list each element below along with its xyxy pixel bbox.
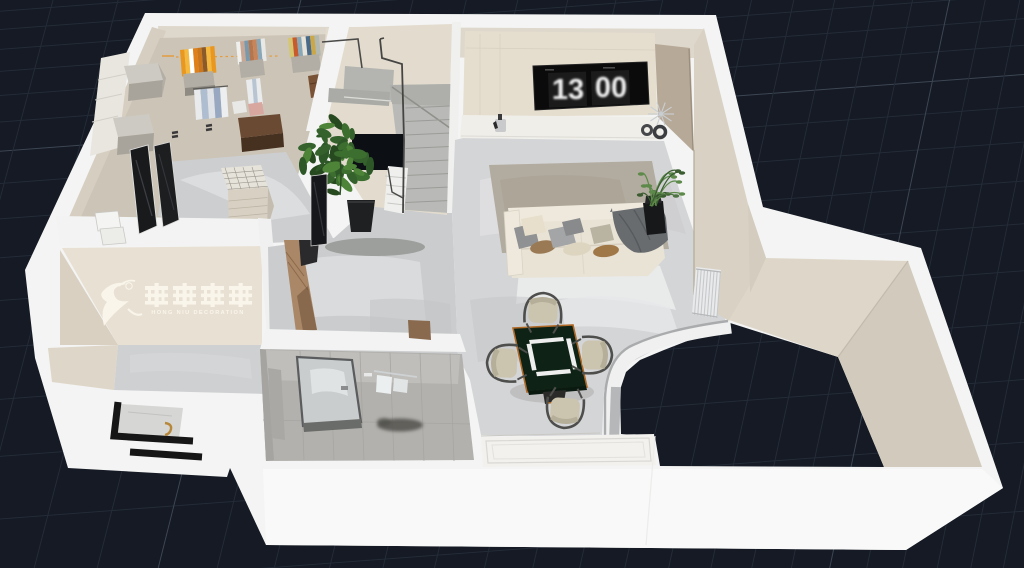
svg-text:00: 00: [595, 72, 627, 104]
svg-text:HONG NIU DECORATION: HONG NIU DECORATION: [151, 310, 244, 316]
svg-text:13: 13: [552, 74, 584, 106]
